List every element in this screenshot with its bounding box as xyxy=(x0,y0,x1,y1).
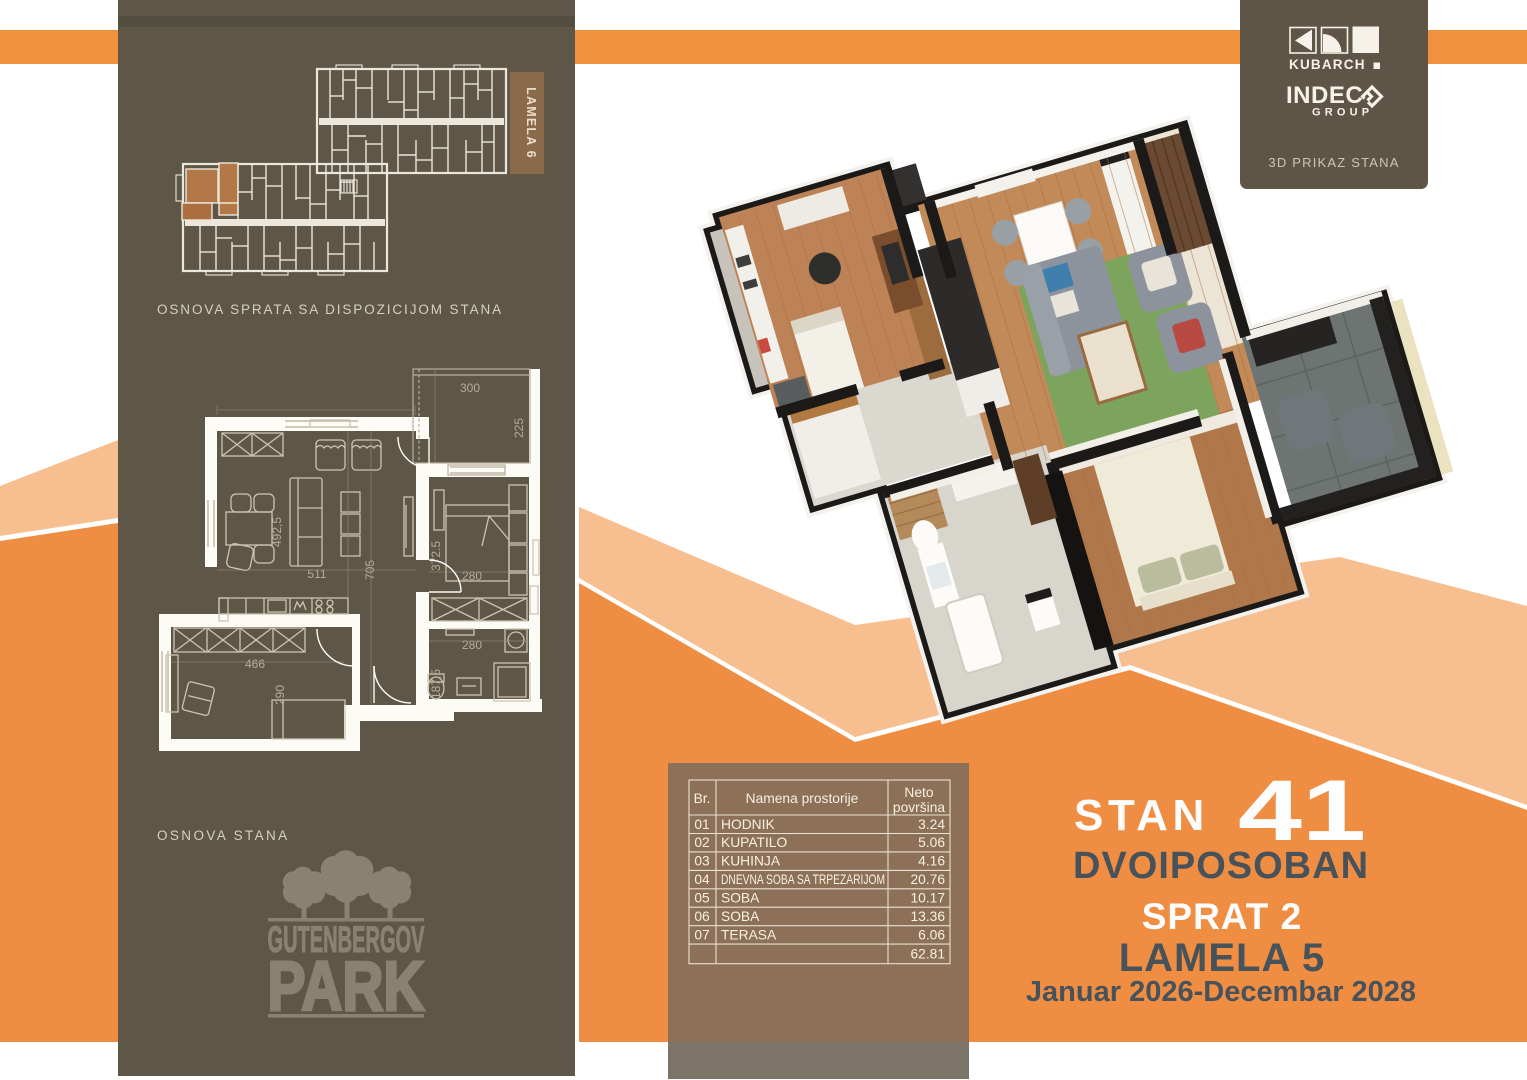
svg-text:Januar 2026-Decembar 2028: Januar 2026-Decembar 2028 xyxy=(1026,976,1416,1008)
svg-text:Neto: Neto xyxy=(904,785,933,800)
svg-text:13.36: 13.36 xyxy=(910,909,945,924)
svg-text:5.06: 5.06 xyxy=(918,835,945,850)
svg-text:280: 280 xyxy=(462,638,482,652)
svg-text:187,5: 187,5 xyxy=(429,669,443,699)
svg-text:05: 05 xyxy=(694,891,710,906)
svg-text:Br.: Br. xyxy=(694,791,711,806)
svg-text:GROUP: GROUP xyxy=(1312,107,1373,119)
svg-text:02: 02 xyxy=(694,835,709,850)
svg-text:20.76: 20.76 xyxy=(910,872,945,887)
svg-text:03: 03 xyxy=(694,854,710,869)
svg-text:STAN: STAN xyxy=(1074,791,1209,840)
svg-text:372.5: 372.5 xyxy=(429,541,443,571)
svg-text:511: 511 xyxy=(307,567,326,581)
svg-text:OSNOVA SPRATA SA DISPOZICIJOM: OSNOVA SPRATA SA DISPOZICIJOM STANA xyxy=(157,302,503,317)
svg-text:OSNOVA STANA: OSNOVA STANA xyxy=(157,828,290,843)
svg-text:DVOIPOSOBAN: DVOIPOSOBAN xyxy=(1073,845,1369,887)
svg-text:TERASA: TERASA xyxy=(721,928,777,943)
svg-text:LAMELA 6: LAMELA 6 xyxy=(524,87,538,159)
svg-text:Namena prostorije: Namena prostorije xyxy=(746,791,859,806)
svg-text:07: 07 xyxy=(694,928,709,943)
svg-text:04: 04 xyxy=(694,872,710,887)
svg-text:HODNIK: HODNIK xyxy=(721,817,775,832)
svg-text:466: 466 xyxy=(245,657,265,671)
svg-text:KUBARCH: KUBARCH xyxy=(1289,57,1366,72)
svg-text:površina: površina xyxy=(893,800,945,815)
svg-text:62.81: 62.81 xyxy=(910,946,945,961)
svg-text:KUPATILO: KUPATILO xyxy=(721,835,787,850)
svg-text:10.17: 10.17 xyxy=(910,891,945,906)
svg-text:KUHINJA: KUHINJA xyxy=(721,854,781,869)
svg-text:3D PRIKAZ STANA: 3D PRIKAZ STANA xyxy=(1268,155,1399,170)
svg-text:LAMELA 5: LAMELA 5 xyxy=(1119,936,1326,980)
svg-text:06: 06 xyxy=(694,909,710,924)
svg-text:6.06: 6.06 xyxy=(918,928,945,943)
svg-text:3.24: 3.24 xyxy=(918,817,945,832)
svg-text:300: 300 xyxy=(460,381,480,395)
svg-text:492,5: 492,5 xyxy=(270,517,284,547)
svg-text:PARK: PARK xyxy=(268,947,425,1025)
svg-text:290: 290 xyxy=(273,685,287,705)
svg-text:SPRAT 2: SPRAT 2 xyxy=(1142,896,1303,937)
svg-text:225: 225 xyxy=(512,418,526,438)
svg-text:DNEVNA SOBA SA TRPEZARIJOM: DNEVNA SOBA SA TRPEZARIJOM xyxy=(721,872,885,887)
svg-text:280: 280 xyxy=(462,569,482,583)
svg-text:SOBA: SOBA xyxy=(721,891,760,906)
svg-text:01: 01 xyxy=(694,817,709,832)
svg-text:INDEC: INDEC xyxy=(1286,82,1363,109)
svg-text:4.16: 4.16 xyxy=(918,854,945,869)
svg-text:SOBA: SOBA xyxy=(721,909,760,924)
